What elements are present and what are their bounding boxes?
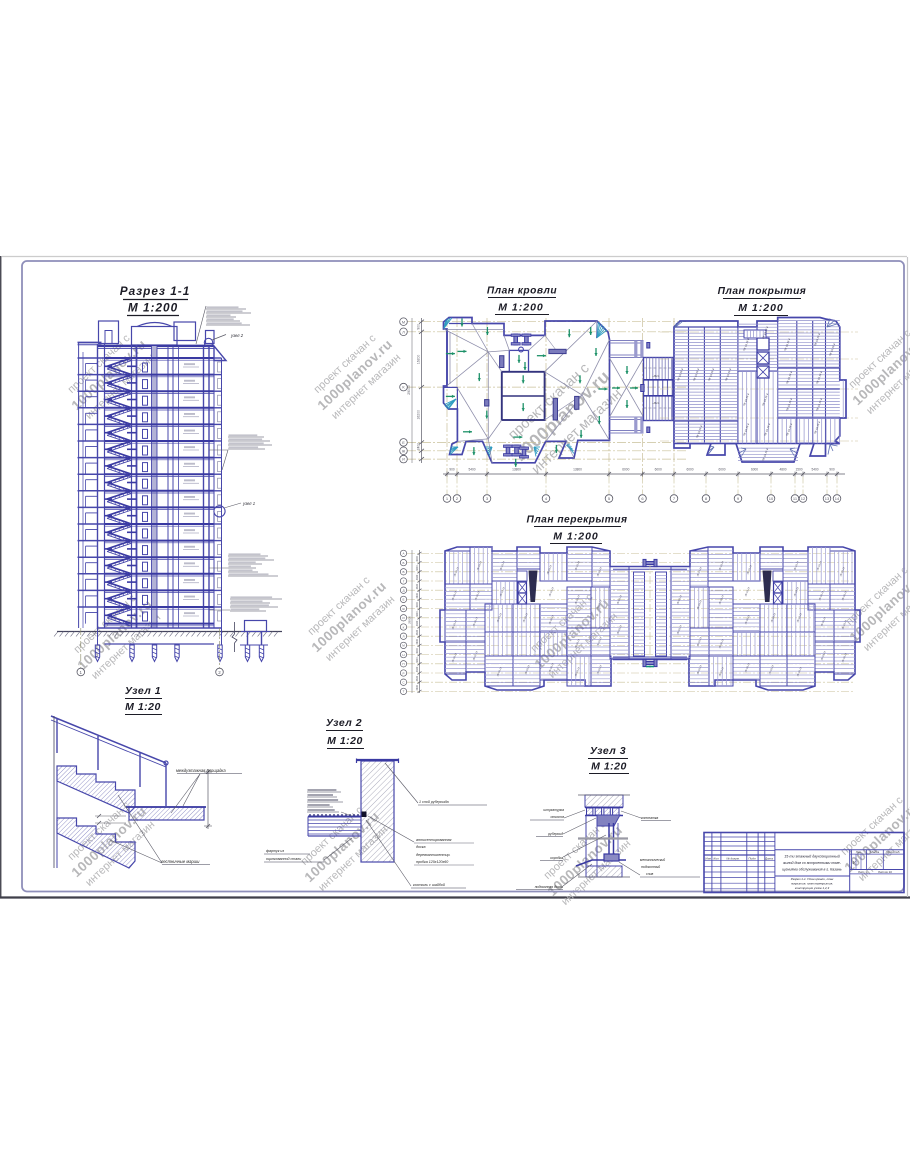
svg-text:3600: 3600 (416, 648, 419, 654)
svg-text:Подп: Подп (748, 857, 756, 861)
svg-text:4800: 4800 (779, 468, 786, 472)
svg-text:15-ти этажный двухсекционный: 15-ти этажный двухсекционный (784, 855, 839, 859)
svg-text:Ж: Ж (402, 449, 406, 453)
svg-text:3600: 3600 (416, 565, 419, 571)
svg-text:⌐8 ст.: ⌐8 ст. (652, 401, 659, 405)
svg-text:П: П (402, 662, 404, 666)
svg-text:3600: 3600 (416, 657, 419, 663)
svg-text:Узел 3: Узел 3 (590, 745, 626, 757)
svg-text:узел 2: узел 2 (230, 333, 244, 338)
svg-text:5400: 5400 (468, 468, 475, 472)
svg-text:План перекрытия: План перекрытия (527, 515, 628, 526)
svg-text:6000: 6000 (686, 468, 693, 472)
svg-text:костыль с шайбой: костыль с шайбой (413, 883, 445, 887)
svg-text:3600: 3600 (416, 556, 419, 562)
svg-text:Разрез 1-1. План кровли, план: Разрез 1-1. План кровли, план (791, 877, 834, 881)
svg-text:М 1:200: М 1:200 (553, 531, 599, 543)
svg-text:13: 13 (825, 496, 830, 501)
svg-text:2400: 2400 (417, 443, 421, 451)
svg-text:Лит.: Лит. (856, 850, 862, 854)
svg-text:3600: 3600 (416, 629, 419, 635)
svg-text:900: 900 (417, 324, 421, 330)
svg-text:Масштаб: Масштаб (887, 850, 900, 854)
svg-text:Н: Н (402, 653, 404, 657)
svg-text:М: М (402, 320, 405, 324)
svg-text:План кровли: План кровли (487, 286, 557, 297)
svg-text:Е: Е (402, 598, 404, 602)
svg-text:3600: 3600 (416, 574, 419, 580)
svg-text:3600: 3600 (416, 638, 419, 644)
svg-text:16200: 16200 (417, 355, 421, 365)
svg-text:6000: 6000 (718, 468, 725, 472)
svg-text:3600: 3600 (416, 675, 419, 681)
svg-text:Узел 2: Узел 2 (326, 717, 362, 729)
svg-text:И: И (402, 616, 404, 620)
svg-text:12: 12 (801, 496, 806, 501)
svg-text:М 1:20: М 1:20 (327, 735, 363, 747)
svg-text:Кол: Кол (713, 857, 718, 861)
svg-text:План покрытия: План покрытия (718, 286, 807, 297)
svg-text:Дата: Дата (764, 857, 773, 861)
svg-text:подоконная доска: подоконная доска (535, 885, 563, 889)
svg-text:Л: Л (403, 635, 405, 639)
svg-text:М 1:200: М 1:200 (738, 302, 784, 314)
svg-text:жилой дом со встроенными поме-: жилой дом со встроенными поме- (782, 861, 842, 865)
svg-text:слив: слив (646, 872, 653, 876)
svg-text:3600: 3600 (416, 602, 419, 608)
svg-text:Ж: Ж (402, 607, 405, 611)
svg-text:В: В (402, 570, 404, 574)
svg-text:3600: 3600 (416, 666, 419, 672)
svg-text:3600: 3600 (416, 684, 419, 690)
svg-text:И: И (402, 458, 405, 462)
svg-text:Д: Д (402, 589, 404, 593)
svg-text:лестничные марши: лестничные марши (160, 859, 200, 864)
svg-text:М 1:200: М 1:200 (128, 301, 178, 315)
svg-text:покрытия, план перекрытия,: покрытия, план перекрытия, (791, 882, 833, 886)
svg-text:900: 900 (449, 468, 455, 472)
svg-text:13800: 13800 (512, 468, 521, 472)
svg-text:3600: 3600 (416, 611, 419, 617)
svg-text:металлический: металлический (640, 858, 665, 862)
svg-text:фартук из: фартук из (266, 849, 284, 853)
svg-text:оцинкованной стали: оцинкованной стали (266, 857, 301, 861)
svg-text:Е: Е (402, 441, 405, 445)
svg-text:16200: 16200 (417, 410, 421, 420)
svg-text:6000: 6000 (751, 468, 758, 472)
svg-text:1500: 1500 (795, 468, 802, 472)
svg-text:13800: 13800 (573, 468, 582, 472)
svg-text:откосов: откосов (550, 815, 564, 819)
svg-text:Т: Т (403, 690, 405, 694)
svg-text:6000: 6000 (655, 468, 662, 472)
svg-text:междуэтажная площадка: междуэтажная площадка (176, 768, 226, 773)
svg-text:антисептированная: антисептированная (416, 838, 451, 842)
svg-text:10: 10 (769, 496, 774, 501)
svg-text:коробка: коробка (550, 856, 563, 860)
svg-text:Узел 1: Узел 1 (125, 685, 161, 697)
svg-text:3600: 3600 (416, 592, 419, 598)
svg-text:конструкция узлов 1,2,3: конструкция узлов 1,2,3 (795, 886, 830, 890)
svg-text:14: 14 (835, 496, 840, 501)
svg-text:1 слой рубероида: 1 слой рубероида (419, 800, 449, 804)
svg-text:Р: Р (402, 671, 404, 675)
svg-text:Листов 10: Листов 10 (878, 870, 892, 874)
svg-text:М 1:20: М 1:20 (125, 701, 161, 713)
svg-text:конопатка: конопатка (641, 816, 658, 820)
svg-text:Б: Б (403, 561, 405, 565)
svg-text:подоконный: подоконный (641, 865, 660, 869)
svg-text:29000: 29000 (407, 385, 411, 395)
svg-text:узел 1: узел 1 (242, 501, 255, 506)
svg-text:3600: 3600 (416, 583, 419, 589)
svg-text:рубероид: рубероид (547, 832, 563, 836)
svg-text:⌐8 ст.: ⌐8 ст. (652, 374, 659, 378)
svg-text:№ докум.: № докум. (726, 857, 739, 861)
svg-text:пробка 120х120х60: пробка 120х120х60 (416, 860, 448, 864)
svg-text:К: К (403, 625, 405, 629)
svg-text:Масса: Масса (870, 850, 879, 854)
svg-text:штукатурка: штукатурка (543, 808, 564, 812)
svg-text:деревоантисептир.: деревоантисептир. (416, 853, 451, 857)
svg-text:А: А (402, 552, 404, 556)
svg-text:29000: 29000 (408, 616, 412, 624)
svg-text:900: 900 (829, 468, 835, 472)
svg-text:6000: 6000 (622, 468, 629, 472)
svg-text:М 1:20: М 1:20 (591, 761, 627, 773)
svg-text:щениями обслуживания в г. Каза: щениями обслуживания в г. Казань (782, 868, 842, 872)
svg-text:3600: 3600 (416, 620, 419, 626)
svg-text:доска: доска (416, 845, 425, 849)
svg-text:Изм: Изм (705, 857, 711, 861)
svg-text:М 1:200: М 1:200 (498, 302, 544, 314)
svg-text:5400: 5400 (811, 468, 818, 472)
svg-text:Разрез 1-1: Разрез 1-1 (120, 284, 191, 298)
svg-text:Лист 1: Лист 1 (858, 870, 867, 874)
